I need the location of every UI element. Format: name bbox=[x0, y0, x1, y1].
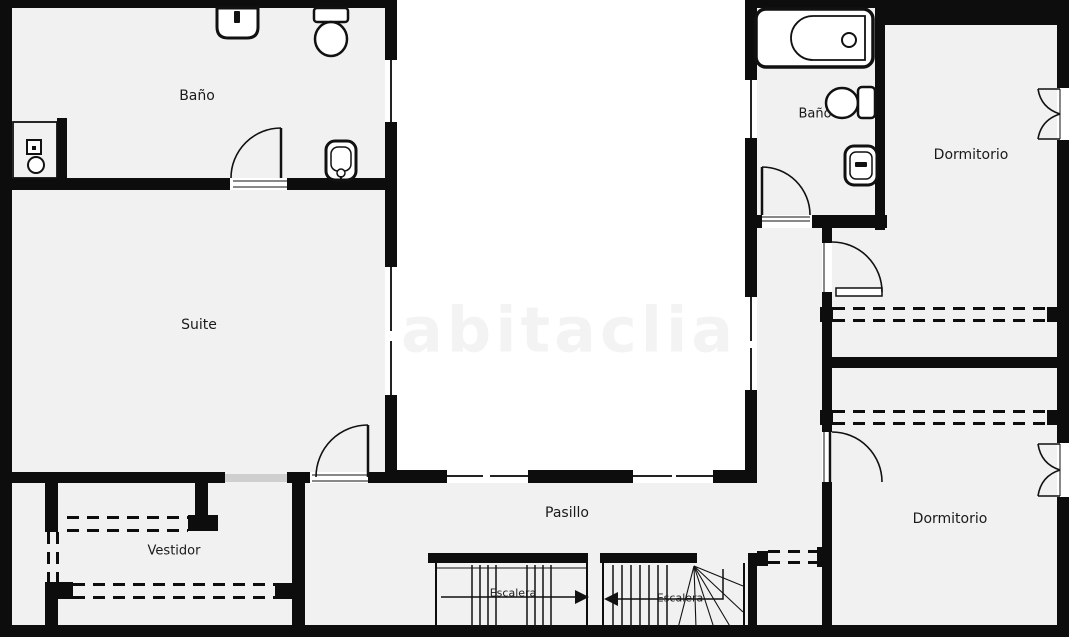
window-or-door-gap bbox=[633, 470, 713, 483]
room-label-vestidor: Vestidor bbox=[148, 544, 201, 559]
watermark: habitaclia bbox=[353, 294, 737, 367]
wall bbox=[1047, 307, 1060, 322]
floor-plan: habitaclia Baño Suite Vestidor Pasillo E… bbox=[0, 0, 1069, 637]
wall bbox=[745, 138, 757, 297]
wall bbox=[745, 0, 885, 8]
wall bbox=[287, 472, 310, 483]
wardrobe-dashed-line bbox=[47, 532, 50, 582]
wall bbox=[743, 563, 745, 630]
wall bbox=[748, 553, 757, 630]
wall bbox=[45, 483, 58, 532]
wall bbox=[0, 625, 1069, 637]
wardrobe-dashed-line bbox=[833, 410, 1047, 413]
wall bbox=[875, 0, 885, 230]
window-or-door-gap bbox=[762, 215, 812, 228]
wall bbox=[57, 118, 67, 190]
wall bbox=[275, 583, 293, 599]
room-label-escalera-right: Escalera bbox=[657, 592, 704, 605]
room-label-dormitorio2: Dormitorio bbox=[913, 511, 988, 527]
wardrobe-dashed-line bbox=[833, 307, 1047, 310]
wardrobe-dashed-line bbox=[833, 422, 1047, 425]
window-or-door-gap bbox=[745, 297, 757, 390]
wall bbox=[50, 582, 73, 599]
wall bbox=[820, 410, 833, 425]
window-or-door-gap bbox=[1057, 443, 1069, 497]
wall bbox=[745, 0, 757, 80]
room-label-bano1: Baño bbox=[179, 88, 215, 104]
room-label-suite: Suite bbox=[181, 317, 217, 333]
wall bbox=[0, 0, 397, 8]
wall bbox=[385, 395, 397, 483]
wall bbox=[1057, 0, 1069, 88]
wall bbox=[0, 472, 225, 483]
wall bbox=[287, 178, 397, 190]
sliding-door bbox=[225, 474, 287, 482]
wall bbox=[745, 390, 757, 483]
window-or-door-gap bbox=[822, 432, 832, 482]
window-or-door-gap bbox=[385, 267, 397, 395]
room-label-dormitorio1: Dormitorio bbox=[934, 147, 1009, 163]
wall bbox=[195, 483, 208, 517]
wall bbox=[397, 470, 447, 483]
wall bbox=[825, 357, 1069, 368]
wall bbox=[292, 483, 305, 637]
wall bbox=[1057, 140, 1069, 443]
wall bbox=[368, 472, 397, 483]
window-or-door-gap bbox=[385, 60, 397, 122]
wardrobe-dashed-line bbox=[768, 550, 817, 553]
wall bbox=[757, 551, 768, 566]
window-or-door-gap bbox=[822, 243, 832, 292]
wall bbox=[188, 515, 218, 531]
wall bbox=[1057, 497, 1069, 637]
wardrobe-dashed-line bbox=[67, 529, 188, 532]
window-or-door-gap bbox=[310, 472, 368, 483]
wall bbox=[0, 178, 230, 190]
wall bbox=[602, 563, 604, 630]
window-or-door-gap bbox=[745, 80, 757, 138]
wall bbox=[435, 563, 437, 630]
window-or-door-gap bbox=[1057, 88, 1069, 140]
wall bbox=[385, 0, 397, 60]
wall bbox=[428, 553, 588, 563]
wall bbox=[820, 307, 833, 322]
wardrobe-dashed-line bbox=[67, 516, 188, 519]
wardrobe-dashed-line bbox=[73, 583, 275, 586]
window-or-door-gap bbox=[447, 470, 528, 483]
room-label-escalera-left: Escalera bbox=[490, 587, 537, 600]
wall bbox=[586, 563, 588, 630]
wardrobe-dashed-line bbox=[833, 319, 1047, 322]
wall bbox=[528, 470, 633, 483]
wardrobe-dashed-line bbox=[73, 596, 275, 599]
wall bbox=[385, 122, 397, 267]
wall bbox=[600, 553, 697, 563]
wardrobe-dashed-line bbox=[768, 561, 817, 564]
wall bbox=[822, 222, 832, 243]
window-glazing bbox=[391, 60, 751, 476]
wall bbox=[1047, 410, 1060, 425]
wall bbox=[885, 0, 1069, 25]
wall bbox=[817, 547, 826, 567]
window-or-door-gap bbox=[230, 178, 287, 190]
room-label-pasillo: Pasillo bbox=[545, 505, 589, 521]
wardrobe-dashed-line bbox=[56, 532, 59, 582]
room-label-bano2: Baño bbox=[798, 107, 831, 122]
wall bbox=[0, 0, 12, 637]
